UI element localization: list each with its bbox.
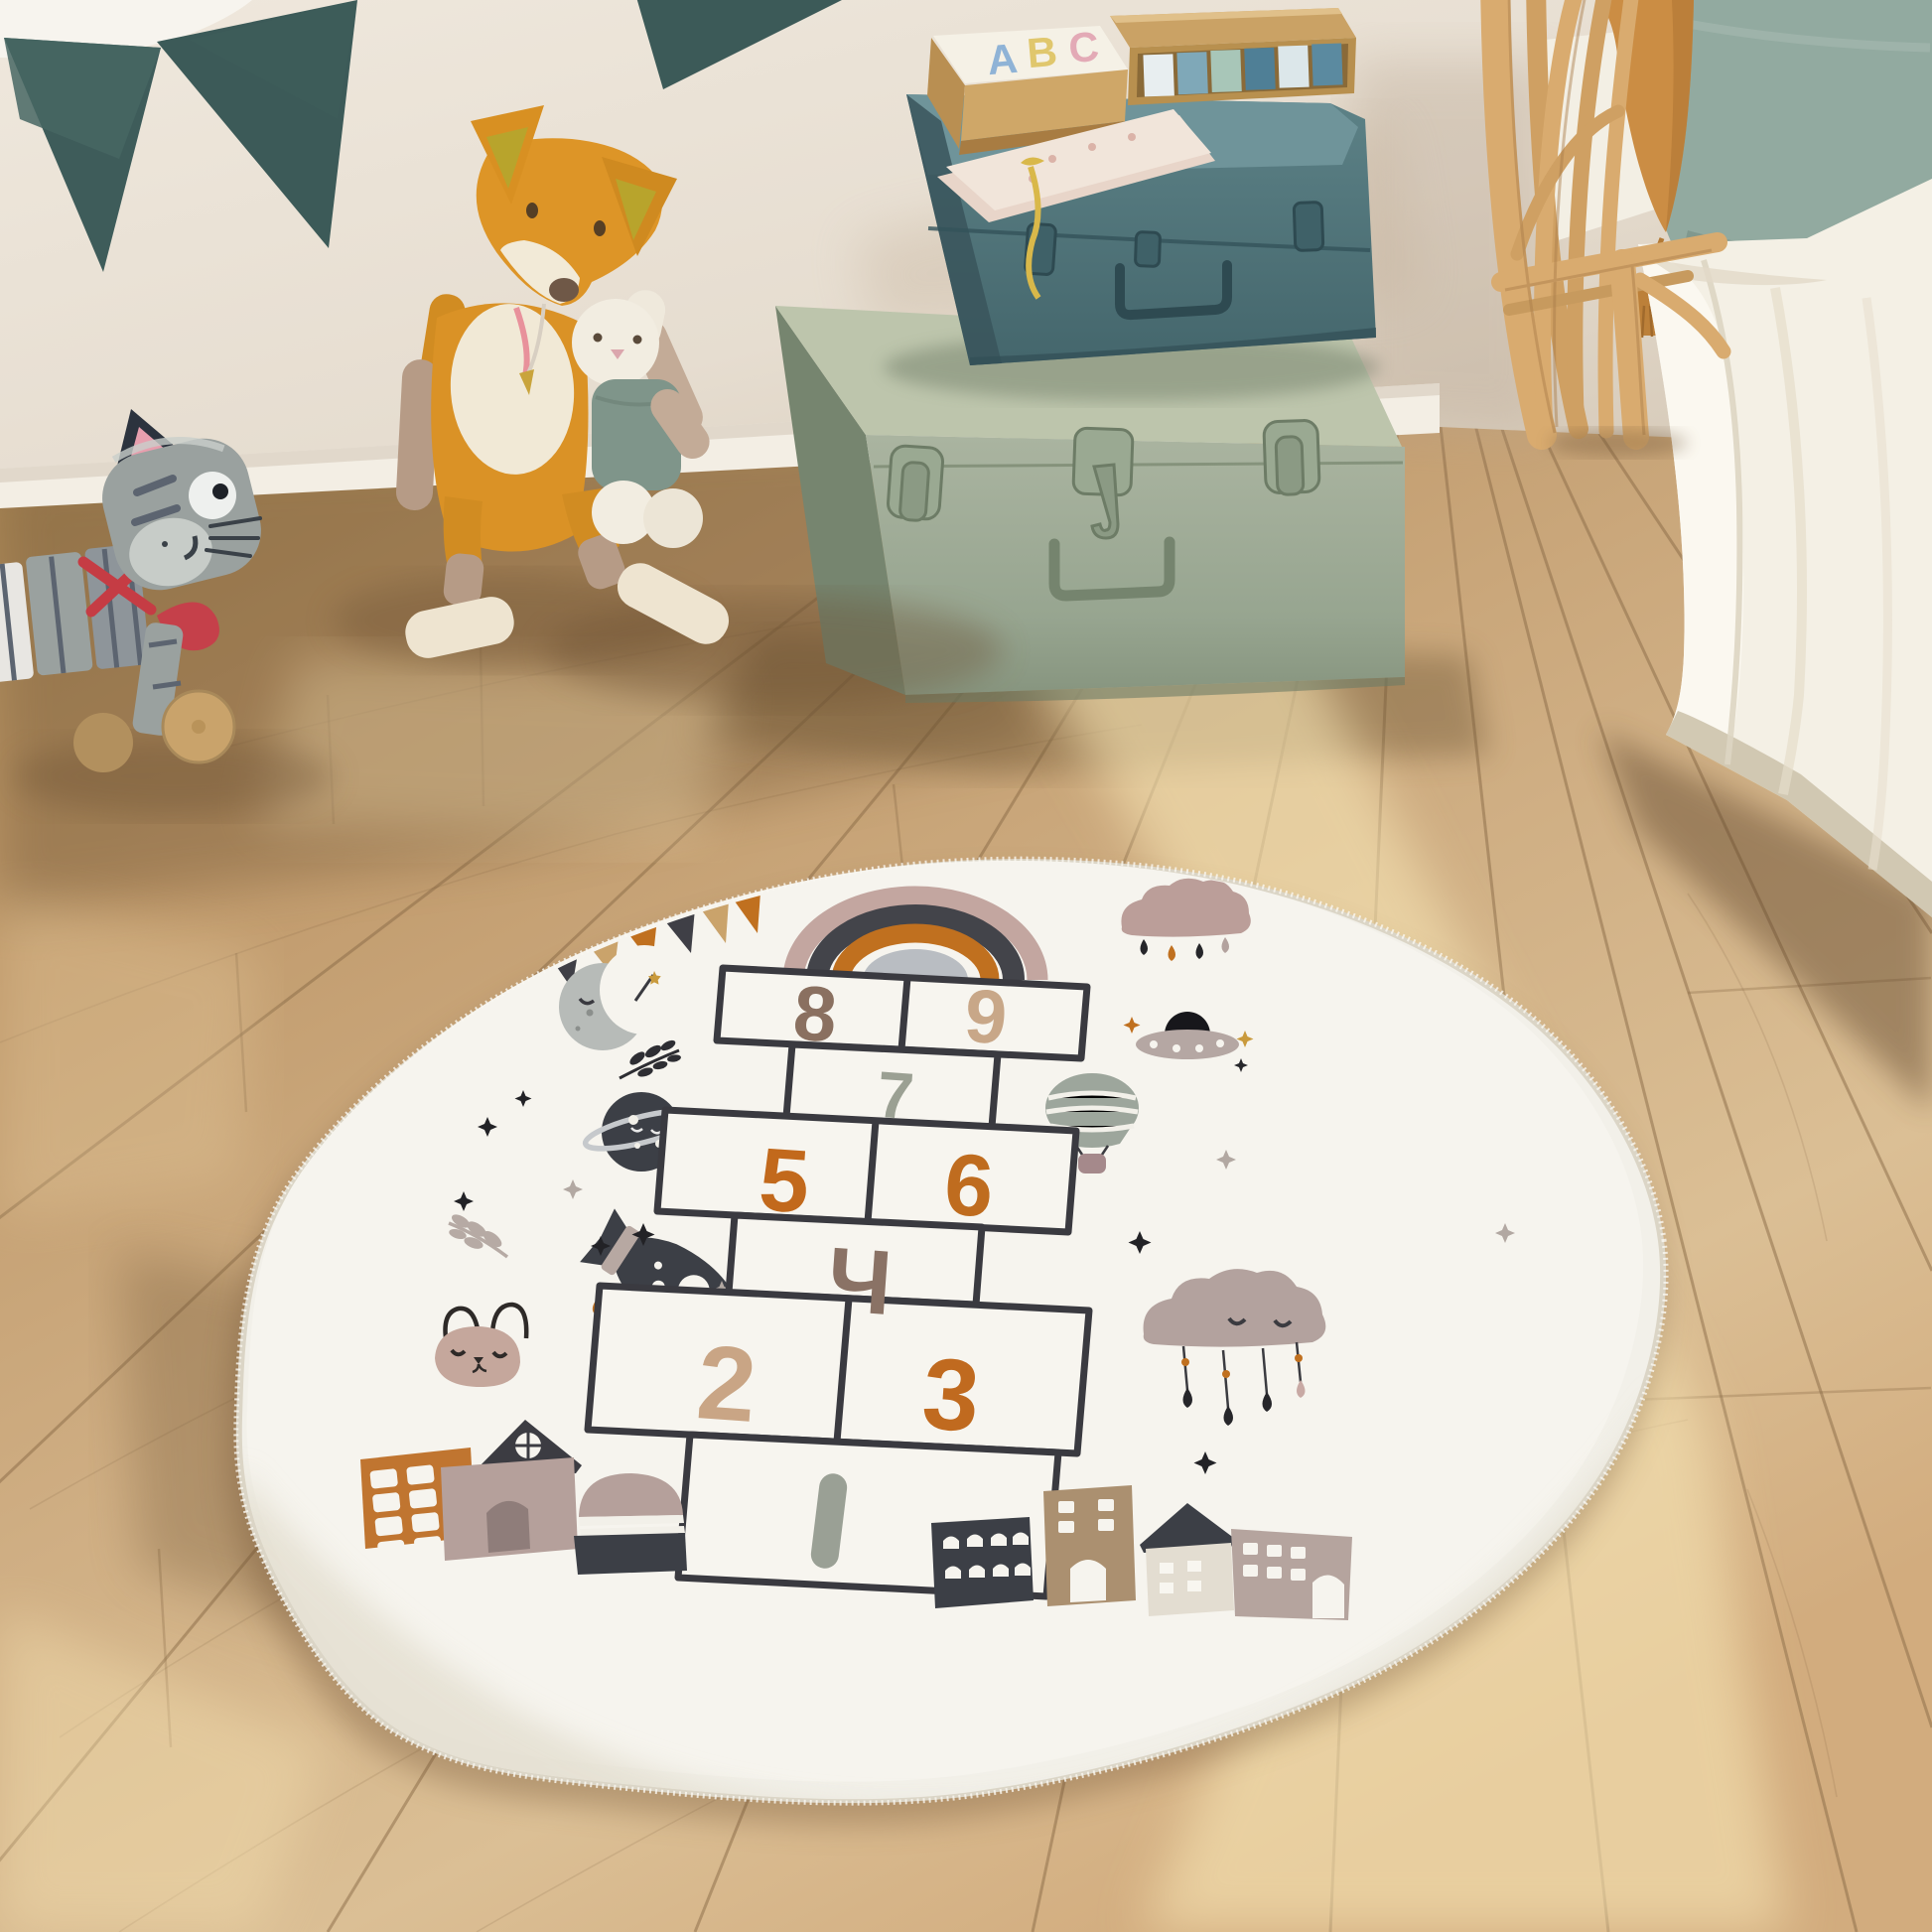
- svg-text:7: 7: [875, 1057, 916, 1133]
- svg-text:A: A: [985, 35, 1019, 83]
- svg-text:C: C: [1066, 23, 1100, 71]
- svg-text:5: 5: [756, 1130, 812, 1232]
- svg-text:8: 8: [790, 969, 839, 1059]
- svg-text:2: 2: [693, 1323, 759, 1445]
- svg-text:Ч: Ч: [824, 1229, 896, 1334]
- svg-text:3: 3: [919, 1336, 984, 1453]
- svg-text:B: B: [1025, 28, 1058, 76]
- svg-text:6: 6: [941, 1134, 997, 1235]
- svg-text:9: 9: [962, 974, 1010, 1061]
